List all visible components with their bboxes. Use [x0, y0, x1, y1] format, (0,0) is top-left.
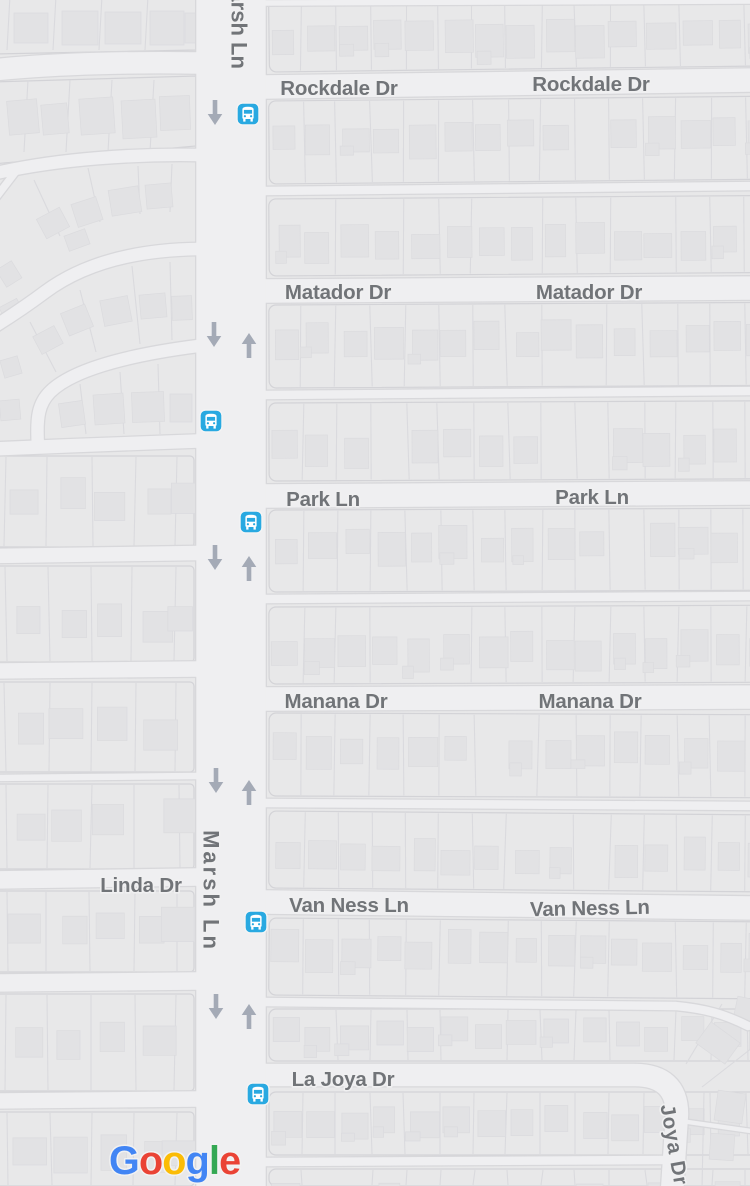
- svg-text:Manana Dr: Manana Dr: [284, 690, 387, 713]
- svg-text:Matador Dr: Matador Dr: [285, 281, 391, 304]
- svg-text:Van Ness Ln: Van Ness Ln: [289, 894, 409, 917]
- svg-text:Park Ln: Park Ln: [555, 486, 629, 509]
- svg-text:Rockdale Dr: Rockdale Dr: [280, 77, 398, 100]
- svg-text:Marsh Ln: Marsh Ln: [199, 830, 224, 952]
- svg-text:Manana Dr: Manana Dr: [538, 690, 641, 713]
- svg-text:Linda Dr: Linda Dr: [100, 874, 182, 897]
- svg-text:Marsh Ln: Marsh Ln: [227, 0, 252, 69]
- svg-text:Van Ness Ln: Van Ness Ln: [530, 896, 650, 922]
- svg-text:Rockdale Dr: Rockdale Dr: [532, 73, 650, 96]
- svg-text:La Joya Dr: La Joya Dr: [292, 1068, 395, 1091]
- svg-text:Park Ln: Park Ln: [286, 488, 360, 511]
- svg-text:Google: Google: [109, 1139, 240, 1183]
- svg-text:Matador Dr: Matador Dr: [536, 281, 642, 304]
